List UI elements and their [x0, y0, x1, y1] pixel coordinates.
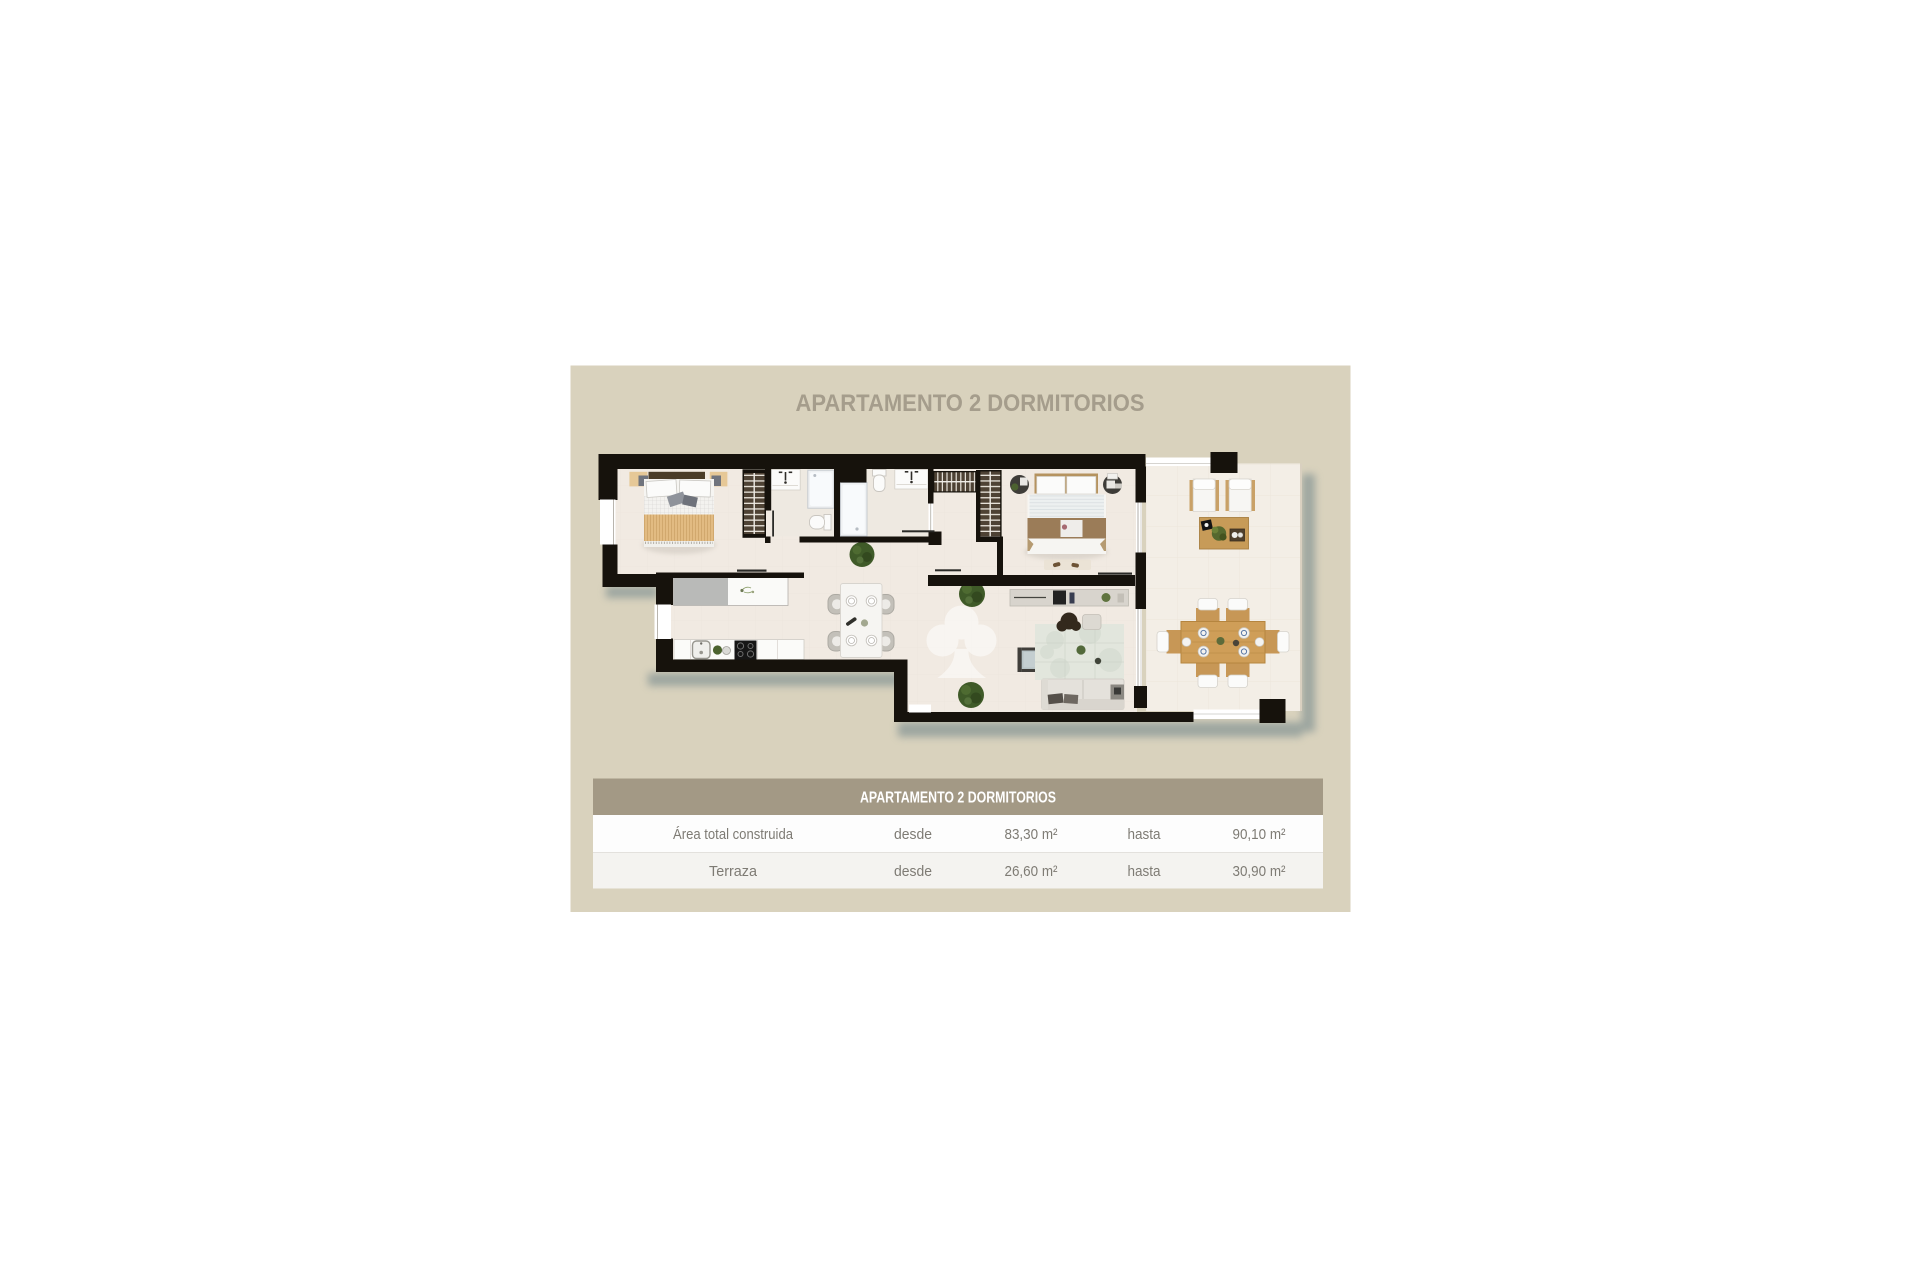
svg-text:Terraza: Terraza [709, 863, 758, 880]
svg-text:hasta: hasta [1128, 863, 1162, 880]
svg-text:APARTAMENTO 2 DORMITORIOS: APARTAMENTO 2 DORMITORIOS [860, 790, 1056, 807]
svg-text:83,30 m²: 83,30 m² [1005, 826, 1058, 843]
svg-text:APARTAMENTO 2 DORMITORIOS: APARTAMENTO 2 DORMITORIOS [796, 390, 1145, 417]
svg-text:30,90 m²: 30,90 m² [1233, 863, 1286, 880]
svg-text:26,60 m²: 26,60 m² [1005, 863, 1058, 880]
svg-text:desde: desde [894, 826, 932, 843]
svg-text:Área total construida: Área total construida [673, 826, 794, 843]
svg-text:hasta: hasta [1128, 826, 1162, 843]
svg-text:90,10 m²: 90,10 m² [1233, 826, 1286, 843]
svg-text:desde: desde [894, 863, 932, 880]
